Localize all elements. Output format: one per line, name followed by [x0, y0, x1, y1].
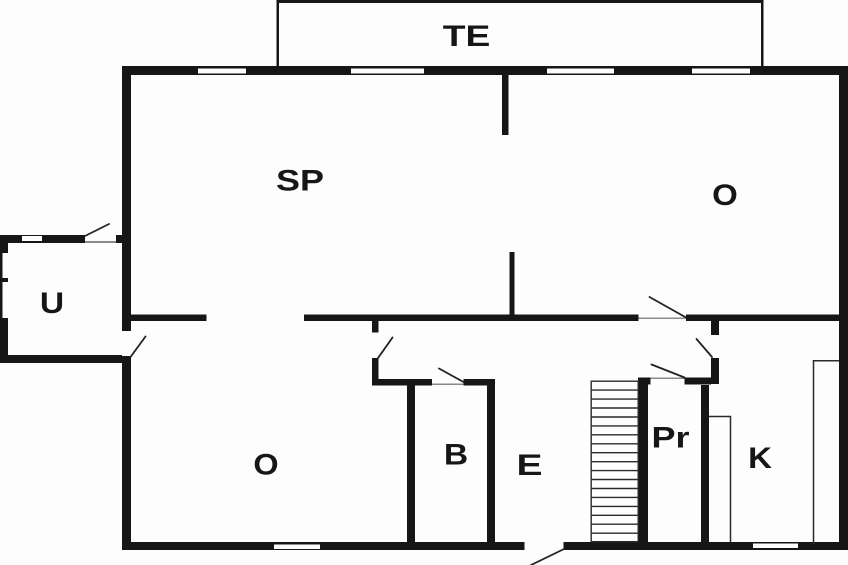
svg-text:K: K — [748, 440, 772, 474]
svg-text:TE: TE — [443, 19, 491, 53]
svg-text:Pr: Pr — [651, 421, 689, 454]
svg-text:O: O — [712, 177, 738, 211]
svg-text:SP: SP — [276, 164, 324, 197]
svg-text:O: O — [253, 448, 278, 482]
svg-text:U: U — [40, 286, 64, 320]
svg-text:B: B — [444, 437, 468, 471]
svg-text:E: E — [516, 449, 542, 482]
